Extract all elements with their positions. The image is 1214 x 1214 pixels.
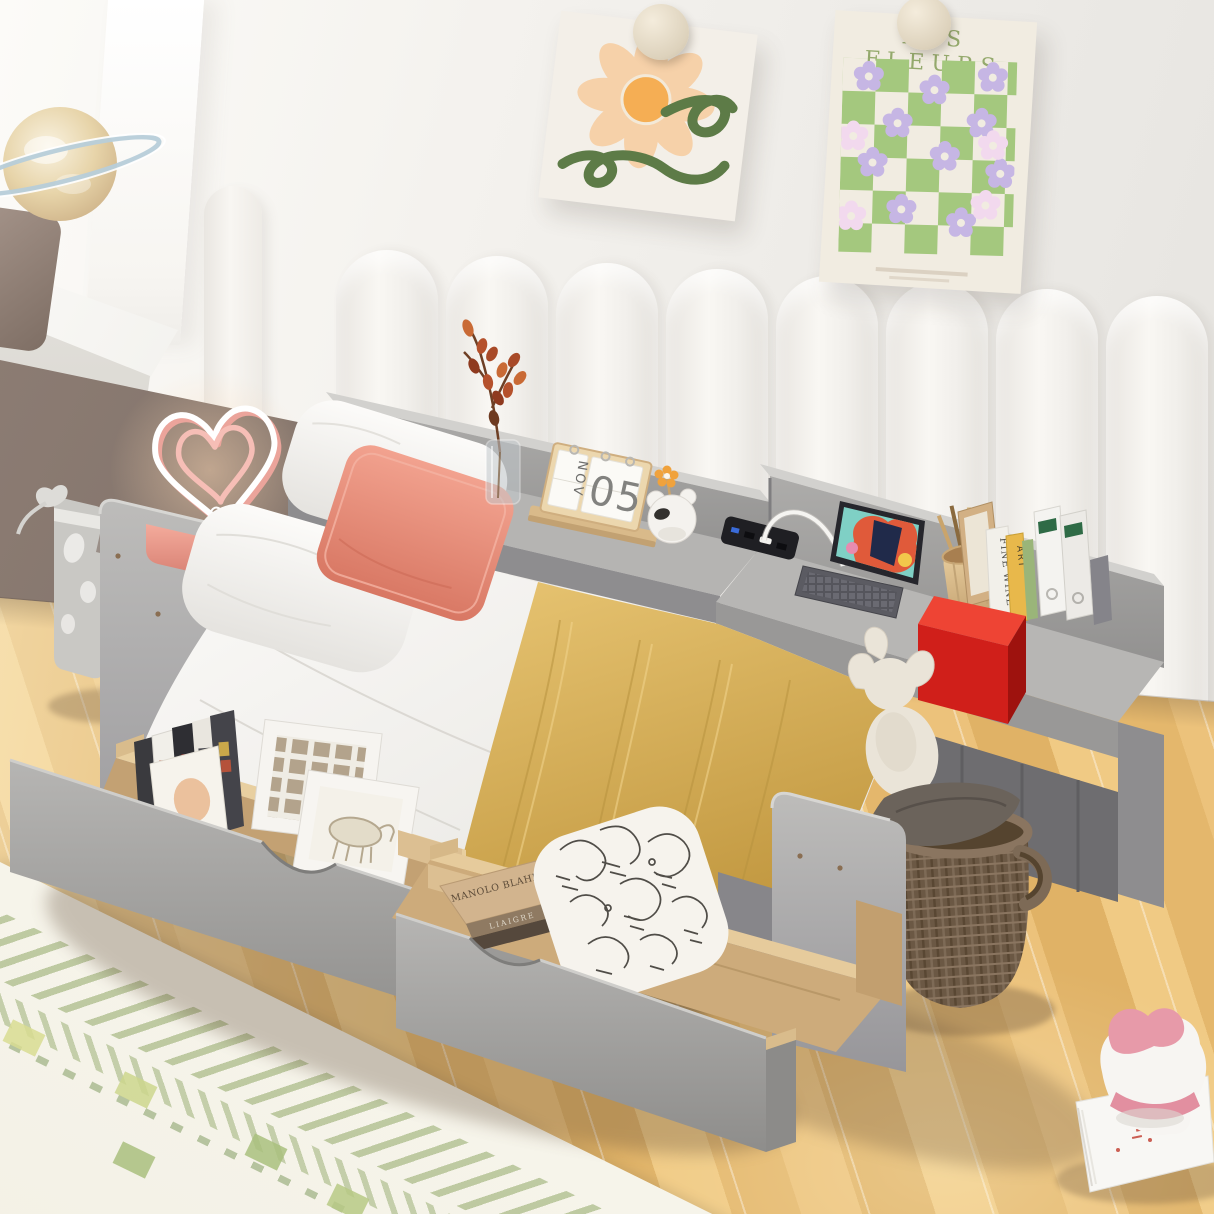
daybed-illustration: NOV 05: [0, 0, 1214, 1214]
desk-support: [1118, 722, 1164, 908]
red-box: [918, 596, 1026, 724]
storage-bin: [18, 485, 104, 678]
bedroom-product-photo: LES FLEURS: [0, 0, 1214, 1214]
